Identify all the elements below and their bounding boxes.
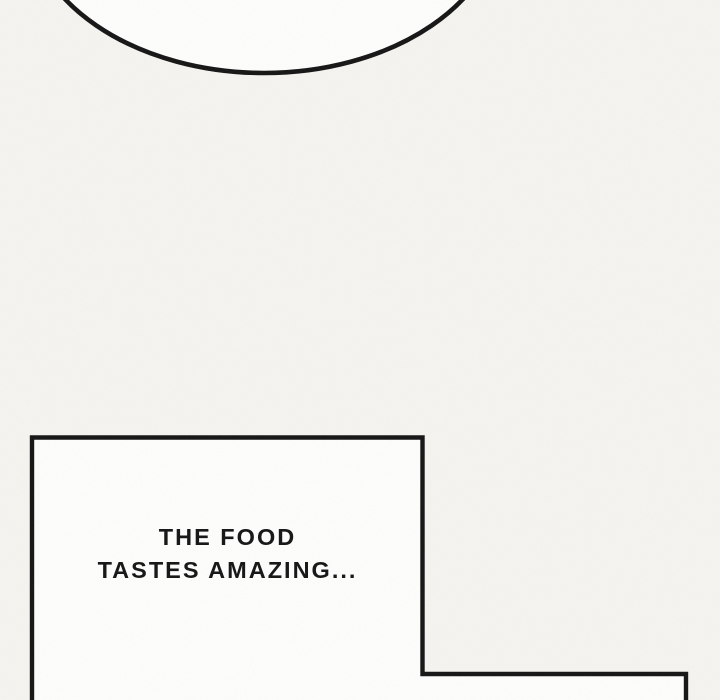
speech-bubble-top-ellipse [27,0,501,73]
dialogue-line-1: THE FOOD [32,521,423,554]
dialogue-text: THE FOOD TASTES AMAZING... [32,521,423,587]
comic-panel: THE FOOD TASTES AMAZING... [0,0,720,700]
panel-artwork [0,0,720,700]
dialogue-line-2: TASTES AMAZING... [32,554,423,587]
